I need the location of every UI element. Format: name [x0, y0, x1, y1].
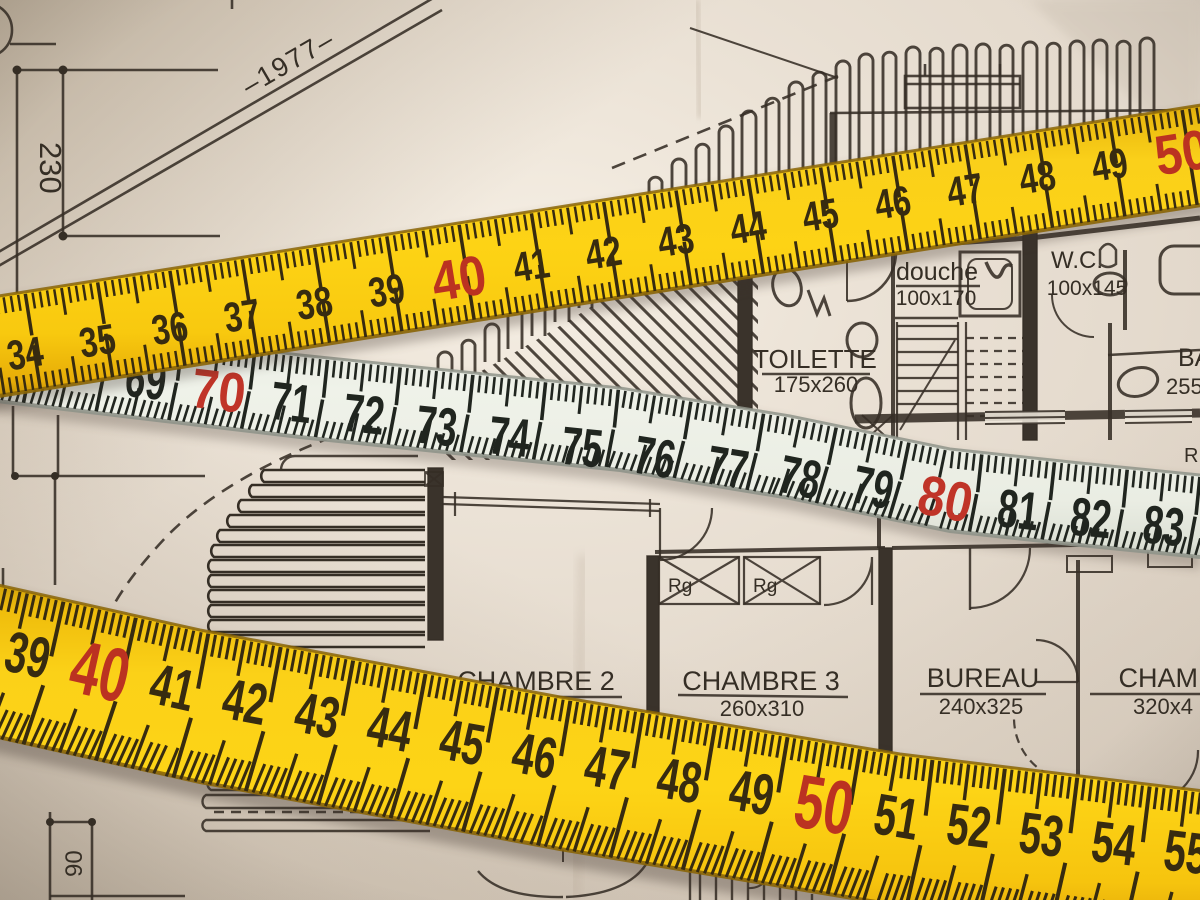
svg-text:72: 72	[340, 383, 387, 447]
svg-text:Rg: Rg	[668, 576, 692, 597]
svg-text:48: 48	[1016, 151, 1059, 203]
svg-text:CHAMBRE: CHAMBRE	[1118, 663, 1200, 693]
svg-text:75: 75	[559, 416, 606, 480]
svg-text:46: 46	[871, 176, 914, 228]
svg-text:240x325: 240x325	[939, 694, 1023, 719]
svg-text:100x145: 100x145	[1047, 277, 1128, 300]
svg-text:71: 71	[267, 371, 315, 435]
svg-text:52: 52	[943, 791, 995, 861]
svg-text:49: 49	[1088, 139, 1131, 191]
svg-text:35: 35	[76, 315, 119, 367]
svg-text:BUREAU: BUREAU	[927, 663, 1040, 693]
svg-text:47: 47	[944, 164, 987, 216]
svg-text:74: 74	[486, 405, 533, 469]
svg-text:320x4: 320x4	[1133, 694, 1193, 719]
svg-text:53: 53	[1016, 800, 1068, 870]
svg-text:255: 255	[1166, 374, 1200, 399]
svg-text:R: R	[1184, 445, 1198, 467]
svg-text:TOILETTE: TOILETTE	[753, 344, 877, 374]
svg-text:82: 82	[1068, 487, 1115, 551]
svg-text:81: 81	[995, 478, 1042, 542]
svg-text:43: 43	[654, 214, 697, 266]
svg-text:41: 41	[510, 239, 553, 291]
svg-text:54: 54	[1088, 809, 1140, 879]
svg-text:260x310: 260x310	[720, 696, 804, 721]
svg-text:CHAMBRE 3: CHAMBRE 3	[682, 666, 840, 696]
svg-text:90: 90	[61, 850, 88, 877]
svg-text:37: 37	[221, 289, 264, 341]
svg-text:42: 42	[582, 227, 625, 279]
svg-text:40: 40	[427, 243, 490, 314]
svg-text:50: 50	[1150, 117, 1200, 188]
svg-text:230: 230	[33, 142, 68, 194]
svg-text:W.C.: W.C.	[1051, 247, 1103, 274]
svg-text:73: 73	[413, 394, 460, 458]
svg-text:36: 36	[148, 302, 191, 354]
svg-text:100x170: 100x170	[896, 287, 977, 310]
svg-text:83: 83	[1140, 494, 1187, 558]
svg-text:55: 55	[1160, 818, 1200, 888]
svg-text:38: 38	[293, 277, 336, 329]
svg-text:39: 39	[365, 264, 408, 316]
svg-text:Rg: Rg	[753, 576, 777, 597]
svg-text:45: 45	[799, 189, 842, 241]
svg-text:BA: BA	[1178, 344, 1200, 372]
svg-text:175x260: 175x260	[774, 372, 858, 397]
